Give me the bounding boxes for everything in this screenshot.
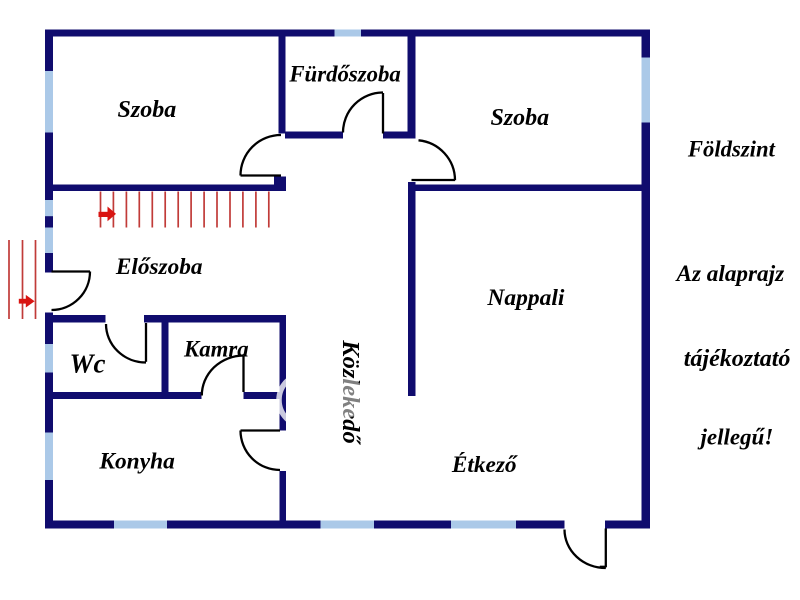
svg-text:Konyha: Konyha: [98, 449, 175, 475]
svg-text:Földszint: Földszint: [687, 137, 776, 162]
svg-text:tájékoztató: tájékoztató: [684, 346, 791, 372]
svg-text:Fürdőszoba: Fürdőszoba: [288, 62, 401, 87]
svg-text:Nappali: Nappali: [486, 285, 565, 311]
svg-text:Előszoba: Előszoba: [115, 254, 203, 280]
svg-text:Szoba: Szoba: [118, 97, 177, 123]
svg-text:Kamra: Kamra: [183, 337, 249, 362]
svg-text:Étkező: Étkező: [451, 452, 518, 478]
svg-text:Szoba: Szoba: [490, 105, 549, 131]
svg-text:Az alaprajz: Az alaprajz: [675, 261, 785, 287]
svg-text:Wc: Wc: [70, 349, 106, 379]
svg-text:jellegű!: jellegű!: [696, 425, 773, 450]
